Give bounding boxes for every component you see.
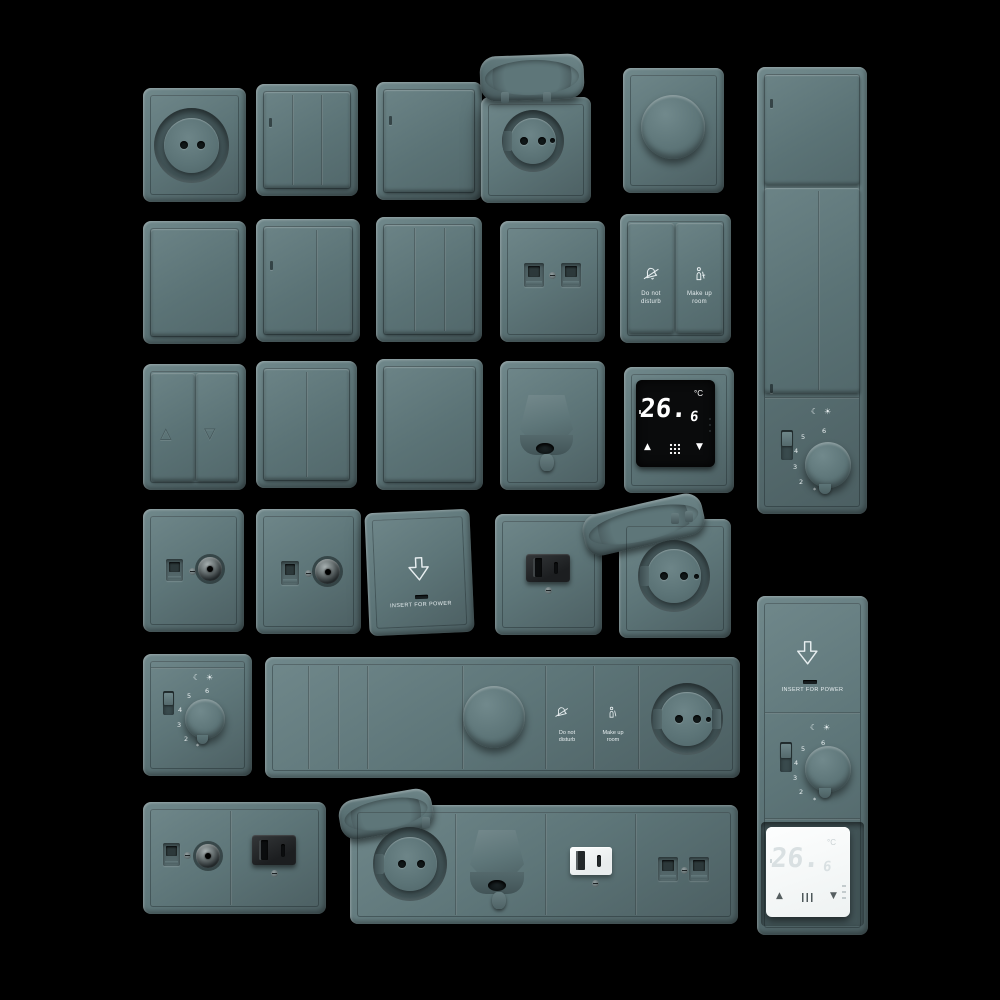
dial-number: 6 <box>205 688 209 695</box>
curtain-switch-plate: △ ▽ <box>143 364 246 490</box>
display-temperature: 26. <box>639 396 688 422</box>
dial-number: 3 <box>793 464 797 471</box>
card-slot[interactable] <box>803 680 817 684</box>
usb-c-port[interactable] <box>597 855 601 867</box>
rj45-lip <box>165 861 178 865</box>
toggle-knob <box>781 744 791 758</box>
dial-number: 3 <box>793 775 797 782</box>
blank-plate <box>143 221 246 344</box>
curtain-up-arrow: △ <box>160 426 172 441</box>
cable-stub <box>540 454 554 471</box>
dimmer-plate <box>623 68 724 193</box>
temp-up-button[interactable]: ▲ <box>644 442 651 452</box>
rj45-jack <box>285 564 296 575</box>
rocker-divider <box>316 230 318 331</box>
section-divider <box>230 811 232 905</box>
cable-spout[interactable] <box>470 830 524 874</box>
rj45-port[interactable] <box>166 559 183 581</box>
usb-c-port[interactable] <box>281 844 285 857</box>
tv-data-socket-plate-1 <box>143 509 244 632</box>
section-divider <box>308 666 310 769</box>
rj45-port[interactable] <box>561 263 581 287</box>
dial-number: 2 <box>184 736 188 743</box>
rocker-2gang[interactable] <box>764 188 860 393</box>
rocker-group[interactable] <box>264 92 350 188</box>
hotel-service-switch-plate: Do not disturb Make up room <box>620 214 731 343</box>
section-divider <box>635 814 637 915</box>
switch-1gang-plate <box>376 82 482 200</box>
make-up-room-label: Make up room <box>583 730 643 744</box>
rj45-lip <box>168 576 181 580</box>
card-slot[interactable] <box>415 595 428 600</box>
rj45-port[interactable] <box>658 857 678 881</box>
section-divider <box>765 712 860 714</box>
coax-connector[interactable] <box>196 844 220 868</box>
screw <box>305 570 312 577</box>
schuko-socket[interactable] <box>651 683 723 755</box>
usb-c-port[interactable] <box>554 562 558 574</box>
dial-number: 3 <box>177 722 181 729</box>
do-not-disturb-label: Do not disturb <box>628 291 674 306</box>
earth-clip <box>503 131 512 151</box>
horizontal-multi-panel: Do not disturb Make up room <box>265 657 740 778</box>
euro-socket-plate <box>143 88 246 202</box>
euro-socket[interactable] <box>154 108 229 183</box>
horizontal-combo-panel <box>350 805 738 924</box>
insert-card-arrow-icon <box>405 555 432 582</box>
dimmer-knob[interactable] <box>641 95 705 159</box>
dial-number: 2 <box>799 479 803 486</box>
cable-hole <box>488 880 506 891</box>
switch-2gang-plate <box>256 219 360 342</box>
rocker-group[interactable] <box>264 369 349 480</box>
usb-charger-module-white[interactable] <box>570 847 612 875</box>
flip-lid-open[interactable] <box>479 53 585 102</box>
schuko-socket[interactable] <box>502 110 564 172</box>
thermostat-knob[interactable] <box>805 746 851 792</box>
insert-for-power-label: INSERT FOR POWER <box>757 687 868 694</box>
section-divider <box>338 666 340 769</box>
display-temperature-decimal: 6 <box>822 860 832 874</box>
rocker-divider <box>414 228 416 331</box>
screw <box>271 870 278 877</box>
socket-pin-left <box>520 137 528 145</box>
socket-hole-small <box>694 574 699 579</box>
frost-mark: * <box>196 743 199 750</box>
indicator-dash <box>389 116 392 125</box>
cable-outlet-plate <box>500 361 605 490</box>
dial-number: 5 <box>187 693 191 700</box>
flip-lid-socket-plate <box>481 97 591 203</box>
rocker-divider <box>818 191 820 390</box>
day-mode-icon: ☀ <box>206 674 213 682</box>
switch-3gang-plate-b <box>376 217 482 342</box>
key-card-switch-plate: INSERT FOR POWER <box>364 509 474 636</box>
rocker[interactable] <box>384 90 474 192</box>
socket-core <box>647 549 700 602</box>
thermostat-knob[interactable] <box>805 442 851 488</box>
rj45-lip <box>691 875 706 879</box>
rj45-lip <box>526 281 541 285</box>
indicator-dash <box>269 118 272 127</box>
rocker-large[interactable] <box>764 75 860 185</box>
menu-icon[interactable] <box>669 443 680 454</box>
screw <box>189 568 196 575</box>
rj45-lip <box>563 281 578 285</box>
socket-pin-right <box>680 572 688 580</box>
rj45-lip <box>660 875 675 879</box>
display-unit: °C <box>694 389 703 398</box>
lid-hinge <box>501 92 509 103</box>
earth-clip <box>375 854 384 874</box>
usb-a-port[interactable] <box>533 558 542 577</box>
lid-hinge <box>543 92 551 103</box>
dial-number: 2 <box>799 789 803 796</box>
lid-underside <box>484 58 579 96</box>
blank-face <box>151 229 238 336</box>
socket-core <box>383 837 438 892</box>
display-unit: °C <box>827 838 836 847</box>
dial-number: 5 <box>801 746 805 753</box>
tv-usb-combo-plate <box>143 802 326 914</box>
heat-toggle[interactable] <box>780 742 792 772</box>
rj45-port[interactable] <box>281 561 299 585</box>
temp-up-button[interactable]: ▲ <box>776 891 783 901</box>
knob-pointer <box>819 788 831 798</box>
make-up-room-icon <box>691 264 709 284</box>
rj45-port[interactable] <box>163 843 180 866</box>
socket-pin-right <box>538 137 546 145</box>
cable-stub <box>492 892 506 909</box>
schuko-socket[interactable] <box>373 827 447 901</box>
rj45-jack <box>693 860 705 871</box>
day-mode-icon: ☀ <box>823 724 830 732</box>
indicator-dash <box>770 384 773 393</box>
frost-mark: * <box>813 797 816 804</box>
coax-connector[interactable] <box>315 559 340 584</box>
coax-connector[interactable] <box>198 557 222 581</box>
rocker-divider <box>292 95 294 185</box>
toggle-knob <box>164 693 173 705</box>
switch-1gang-plate-b <box>376 359 483 490</box>
thermostat-knob[interactable] <box>185 699 225 739</box>
toggle-knob <box>782 432 792 446</box>
rj45-jack <box>528 266 540 277</box>
plate-seam <box>151 667 244 669</box>
dial-number: 4 <box>178 707 182 714</box>
display-temperature: 26. <box>770 845 821 872</box>
indicator-dash <box>270 261 273 270</box>
screw <box>549 272 556 279</box>
do-not-disturb-icon <box>553 704 570 721</box>
usb-a-port[interactable] <box>576 851 585 870</box>
earth-clip <box>653 709 662 729</box>
socket-hole-small <box>706 717 711 722</box>
coax-center-hole <box>207 566 213 572</box>
lid-hinge <box>422 817 430 828</box>
display-temperature-decimal: 6 <box>689 410 699 424</box>
section-divider <box>545 666 547 769</box>
side-indicator-dashes <box>842 885 846 887</box>
rj45-port[interactable] <box>689 857 709 881</box>
temp-down-button[interactable]: ▼ <box>830 891 837 901</box>
screw <box>592 880 599 887</box>
vertical-multi-panel-bottom: INSERT FOR POWER ☾ ☀ 6 5 4 3 2 * 26. 6 °… <box>757 596 868 935</box>
frost-mark: * <box>813 487 816 494</box>
socket-pin-left <box>675 715 683 723</box>
day-mode-icon: ☀ <box>824 408 831 416</box>
section-divider <box>455 814 457 915</box>
rj45-lip <box>283 579 297 583</box>
thermostat-display-white[interactable]: 26. 6 °C ▲ ▼ <box>766 827 850 917</box>
usb-charger-module[interactable] <box>252 835 296 865</box>
socket-pin-right <box>417 860 425 868</box>
rj45-jack <box>166 846 176 856</box>
section-divider <box>367 666 369 769</box>
rj45-jack <box>565 266 577 277</box>
heat-toggle[interactable] <box>781 430 793 460</box>
section-divider <box>765 818 860 820</box>
coax-center-hole <box>205 853 211 859</box>
cable-hole <box>536 443 554 454</box>
thermostat-screen-plate: 26. 6 °C ▲ ▼ <box>624 367 734 493</box>
dial-number: 4 <box>794 760 798 767</box>
dial-number: 5 <box>801 434 805 441</box>
insert-card-arrow-icon <box>794 640 821 666</box>
rj45-jack <box>169 562 179 572</box>
usb-a-port[interactable] <box>259 840 268 860</box>
rocker-divider <box>306 372 308 477</box>
knob-pointer <box>197 735 208 744</box>
thermostat-display[interactable]: 26. 6 °C ▲ ▼ <box>636 380 715 467</box>
cable-spout[interactable] <box>520 395 573 439</box>
earth-clip <box>640 566 649 586</box>
knob-pointer <box>819 484 831 494</box>
screw <box>545 587 552 594</box>
tv-data-socket-plate-2 <box>256 509 361 634</box>
screw <box>184 852 191 859</box>
thermostat-dial-plate: ☾ ☀ 6 5 4 3 2 * <box>143 654 252 776</box>
heat-toggle[interactable] <box>163 691 174 715</box>
curtain-down-arrow: ▽ <box>204 426 216 441</box>
rocker[interactable] <box>384 367 475 482</box>
earth-clip <box>712 709 721 729</box>
rj45-port[interactable] <box>524 263 544 287</box>
socket-pin-right <box>693 715 701 723</box>
dial-number: 4 <box>794 448 798 455</box>
switch-socket-collection-render: ☾ ☀ 6 5 4 3 2 * <box>0 0 1000 1000</box>
night-mode-icon: ☾ <box>811 408 818 416</box>
vertical-multi-panel-top: ☾ ☀ 6 5 4 3 2 * <box>757 67 867 514</box>
switch-3gang-plate <box>256 84 358 196</box>
socket-pin-left <box>660 572 668 580</box>
curtain-down-rocker[interactable] <box>196 373 238 481</box>
section-divider <box>638 666 640 769</box>
coax-center-hole <box>325 569 331 575</box>
night-mode-icon: ☾ <box>193 674 200 682</box>
rj45-jack <box>662 860 674 871</box>
curtain-up-rocker[interactable] <box>151 373 195 481</box>
indicator-dash <box>770 99 773 108</box>
do-not-disturb-icon <box>641 264 661 284</box>
temp-down-button[interactable]: ▼ <box>696 442 703 452</box>
night-mode-icon: ☾ <box>810 724 817 732</box>
dual-data-socket-plate <box>500 221 605 342</box>
socket-pin-left <box>180 141 188 149</box>
flip-lid-socket-plate-open <box>619 519 731 638</box>
rocker-divider <box>321 95 323 185</box>
section-divider <box>593 666 595 769</box>
lid-hinge <box>685 511 693 522</box>
insert-for-power-label: INSERT FOR POWER <box>368 600 473 611</box>
make-up-room-label: Make up room <box>676 291 723 306</box>
usb-charger-module[interactable] <box>526 554 570 582</box>
section-divider <box>765 397 859 399</box>
socket-core <box>164 118 220 174</box>
screw <box>681 867 688 874</box>
schuko-socket[interactable] <box>638 540 710 612</box>
make-up-room-icon <box>605 704 620 721</box>
rocker-group[interactable] <box>264 227 352 334</box>
rocker-group[interactable] <box>384 225 474 334</box>
socket-pin-left <box>398 860 406 868</box>
lid-hinge <box>671 513 679 524</box>
socket-hole-small <box>550 138 555 143</box>
dimmer-knob[interactable] <box>463 686 525 748</box>
rocker-divider <box>444 228 446 331</box>
dial-number: 6 <box>822 428 826 435</box>
side-led-dots <box>709 418 711 420</box>
section-divider <box>545 814 547 915</box>
socket-pin-right <box>197 141 205 149</box>
switch-2gang-plate-b <box>256 361 357 488</box>
menu-icon[interactable] <box>802 893 813 902</box>
